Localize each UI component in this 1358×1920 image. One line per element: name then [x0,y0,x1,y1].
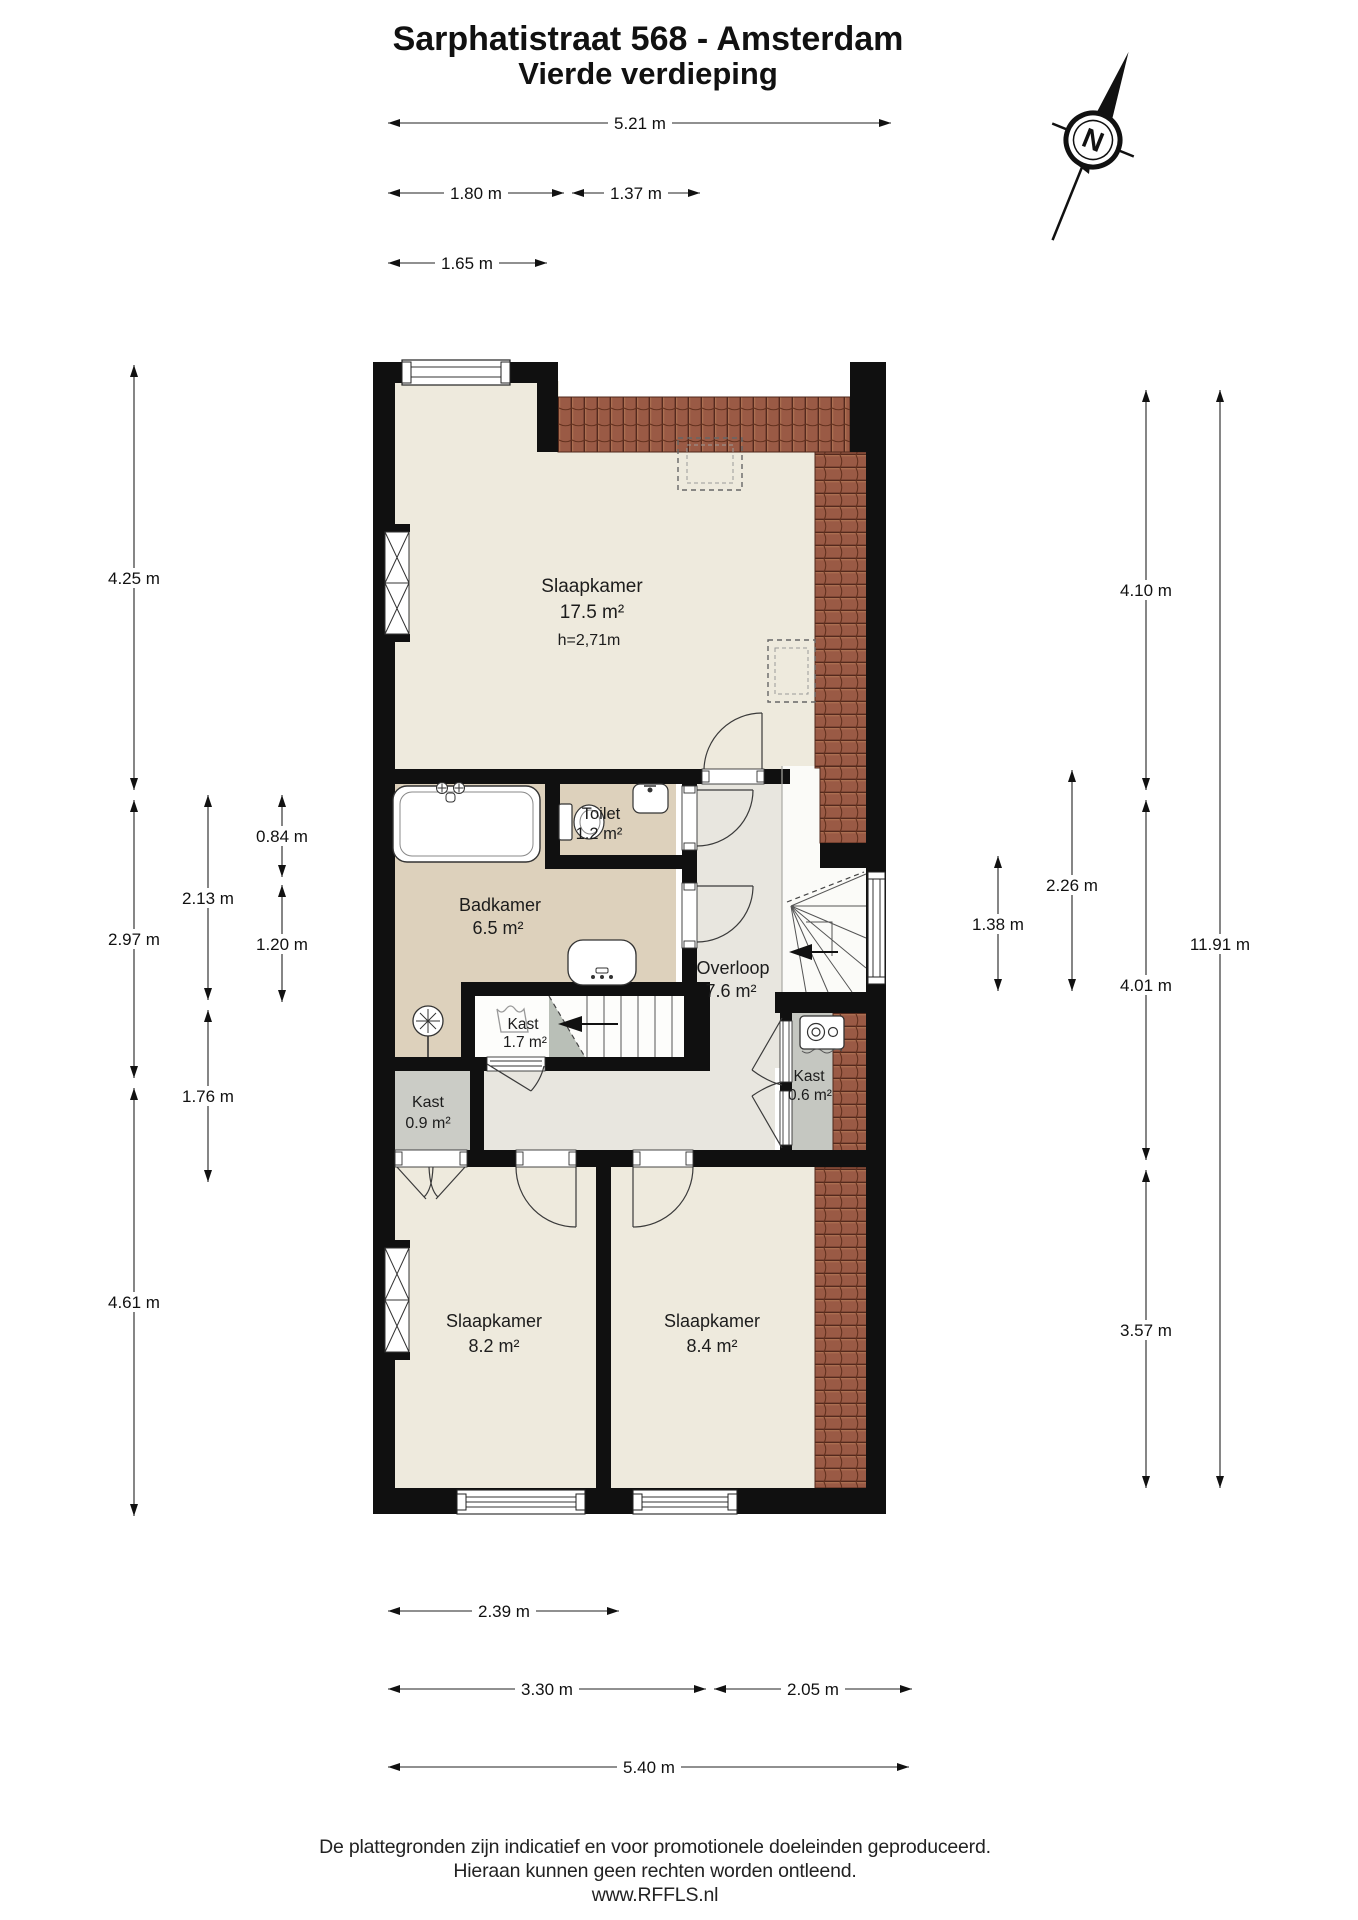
wall-outer-bottom [373,1488,886,1514]
dimension-right-mid: 4.01 m [1114,800,1178,1160]
dimension-right-total: 11.91 m [1181,390,1259,1488]
dimension-left-inner-top: 2.13 m [176,795,240,1000]
dim-label-top-total: 5.21 m [614,114,666,133]
area-toilet: 1.2 m² [576,825,623,843]
dim-label-right-top: 4.10 m [1120,581,1172,600]
wall-kast-links-right [470,1057,484,1150]
area-badkamer: 6.5 m² [472,918,523,938]
compass-north: N [1012,35,1170,256]
dim-label-top-mid: 1.37 m [610,184,662,203]
dim-label-left-mid: 2.97 m [108,930,160,949]
dimension-top-mid: 1.37 m [572,183,700,203]
label-badkamer: Badkamer [459,895,541,915]
page-subtitle: Vierde verdieping [518,56,778,91]
dimension-bottom-room-left: 2.39 m [388,1601,619,1621]
label-slaapkamer-rechtsonder: Slaapkamer [664,1311,760,1331]
boiler [800,1016,844,1053]
footer-line-2: Hieraan kunnen geen rechten worden ontle… [453,1860,856,1882]
area-kast-cv: 0.6 m² [788,1087,832,1104]
dimension-left-inner2-top: 0.84 m [250,795,314,877]
dim-label-right-stair: 1.38 m [972,915,1024,934]
label-toilet: Toilet [582,805,621,823]
wall-kastcv-cap-bottom [780,1145,792,1153]
dim-label-right-bottom: 3.57 m [1120,1321,1172,1340]
floor-slaapkamer-boven [393,381,559,783]
roof-patch-stairwell [820,766,868,843]
roof-band-top [558,397,850,452]
dimension-bottom-left: 3.30 m [388,1679,706,1699]
window-bottom-left [457,1490,585,1514]
dim-label-top-step: 1.65 m [441,254,493,273]
dimension-left-mid: 2.97 m [102,800,166,1078]
dimension-left-bottom: 4.61 m [102,1088,166,1516]
footer-disclaimer: De plattegronden zijn indicatief en voor… [319,1836,991,1906]
wall-stairwell-upper [820,843,886,868]
dim-label-bottom-right: 2.05 m [787,1680,839,1699]
dim-label-right-total: 11.91 m [1190,935,1250,954]
window-left-top [383,524,410,642]
wall-bedrooms-divider [596,1167,611,1488]
wall-kastcv-cap-top [780,1013,792,1021]
area-overloop: 7.6 m² [705,981,756,1001]
dim-label-right-stairwell: 2.26 m [1046,876,1098,895]
label-slaapkamer-linksonder: Slaapkamer [446,1311,542,1331]
floor-plan-svg: Slaapkamer 17.5 m² h=2,71m Toilet 1.2 m²… [0,0,1358,1920]
dim-label-left-inner-bottom: 1.76 m [182,1087,234,1106]
dim-label-left-inner2-bottom: 1.20 m [256,935,308,954]
dimension-right-top: 4.10 m [1114,390,1178,790]
page-title: Sarphatistraat 568 - Amsterdam [393,20,904,58]
title-block: Sarphatistraat 568 - Amsterdam Vierde ve… [393,20,904,91]
area-slaapkamer-boven: 17.5 m² [560,602,624,623]
label-kast-links: Kast [412,1094,445,1111]
area-slaapkamer-rechtsonder: 8.4 m² [686,1336,737,1356]
roof-strip-lower [815,1167,868,1488]
roof-strip-upper [815,452,868,768]
dim-label-left-inner2-top: 0.84 m [256,827,308,846]
wall-toilet-bottom [545,855,691,869]
dimension-left-top: 4.25 m [102,365,166,790]
dim-label-bottom-left: 3.30 m [521,1680,573,1699]
dim-label-left-inner-top: 2.13 m [182,889,234,908]
height-slaapkamer-boven: h=2,71m [558,632,621,649]
dimension-right-bottom: 3.57 m [1114,1170,1178,1488]
hand-basin [633,784,668,813]
footer-line-1: De plattegronden zijn indicatief en voor… [319,1836,991,1858]
dim-label-left-top: 4.25 m [108,569,160,588]
wall-corner-topright [850,362,886,452]
label-slaapkamer-boven: Slaapkamer [541,576,643,597]
window-bottom-right [633,1490,737,1514]
dim-label-bottom-total: 5.40 m [623,1758,675,1777]
area-kast-trap: 1.7 m² [503,1034,547,1051]
dim-label-top-left: 1.80 m [450,184,502,203]
dimension-right-stairwell: 2.26 m [1040,770,1104,991]
window-stairwell [868,872,885,984]
dimension-lines: 5.21 m1.80 m1.37 m1.65 m4.25 m2.97 m4.61… [102,113,1259,1777]
label-overloop: Overloop [696,958,769,978]
dimension-top-total: 5.21 m [388,113,891,133]
area-slaapkamer-linksonder: 8.2 m² [468,1336,519,1356]
dimension-right-stair: 1.38 m [966,856,1030,991]
dimension-left-inner2-bottom: 1.20 m [250,885,314,1002]
area-kast-links: 0.9 m² [405,1115,451,1132]
dimension-left-inner-bottom: 1.76 m [176,1010,240,1182]
dimension-top-left: 1.80 m [388,183,564,203]
footer-website: www.RFFLS.nl [591,1884,719,1906]
dim-label-right-mid: 4.01 m [1120,976,1172,995]
washbasin [568,940,636,985]
label-kast-cv: Kast [793,1068,825,1085]
dim-label-left-bottom: 4.61 m [108,1293,160,1312]
floorplan-page: Slaapkamer 17.5 m² h=2,71m Toilet 1.2 m²… [0,0,1358,1920]
label-kast-trap: Kast [507,1016,539,1033]
wall-stairwell-lower [775,992,886,1013]
dimension-top-step: 1.65 m [388,253,547,273]
wall-kast-trap-left [461,982,475,1065]
dimension-bottom-total: 5.40 m [388,1757,909,1777]
dimension-bottom-right: 2.05 m [714,1679,912,1699]
bathtub [393,783,540,863]
wall-step [537,362,558,452]
compass-tail [1053,164,1084,240]
window-left-bottom [383,1240,410,1360]
dim-label-bottom-room-left: 2.39 m [478,1602,530,1621]
window-top [402,360,510,385]
